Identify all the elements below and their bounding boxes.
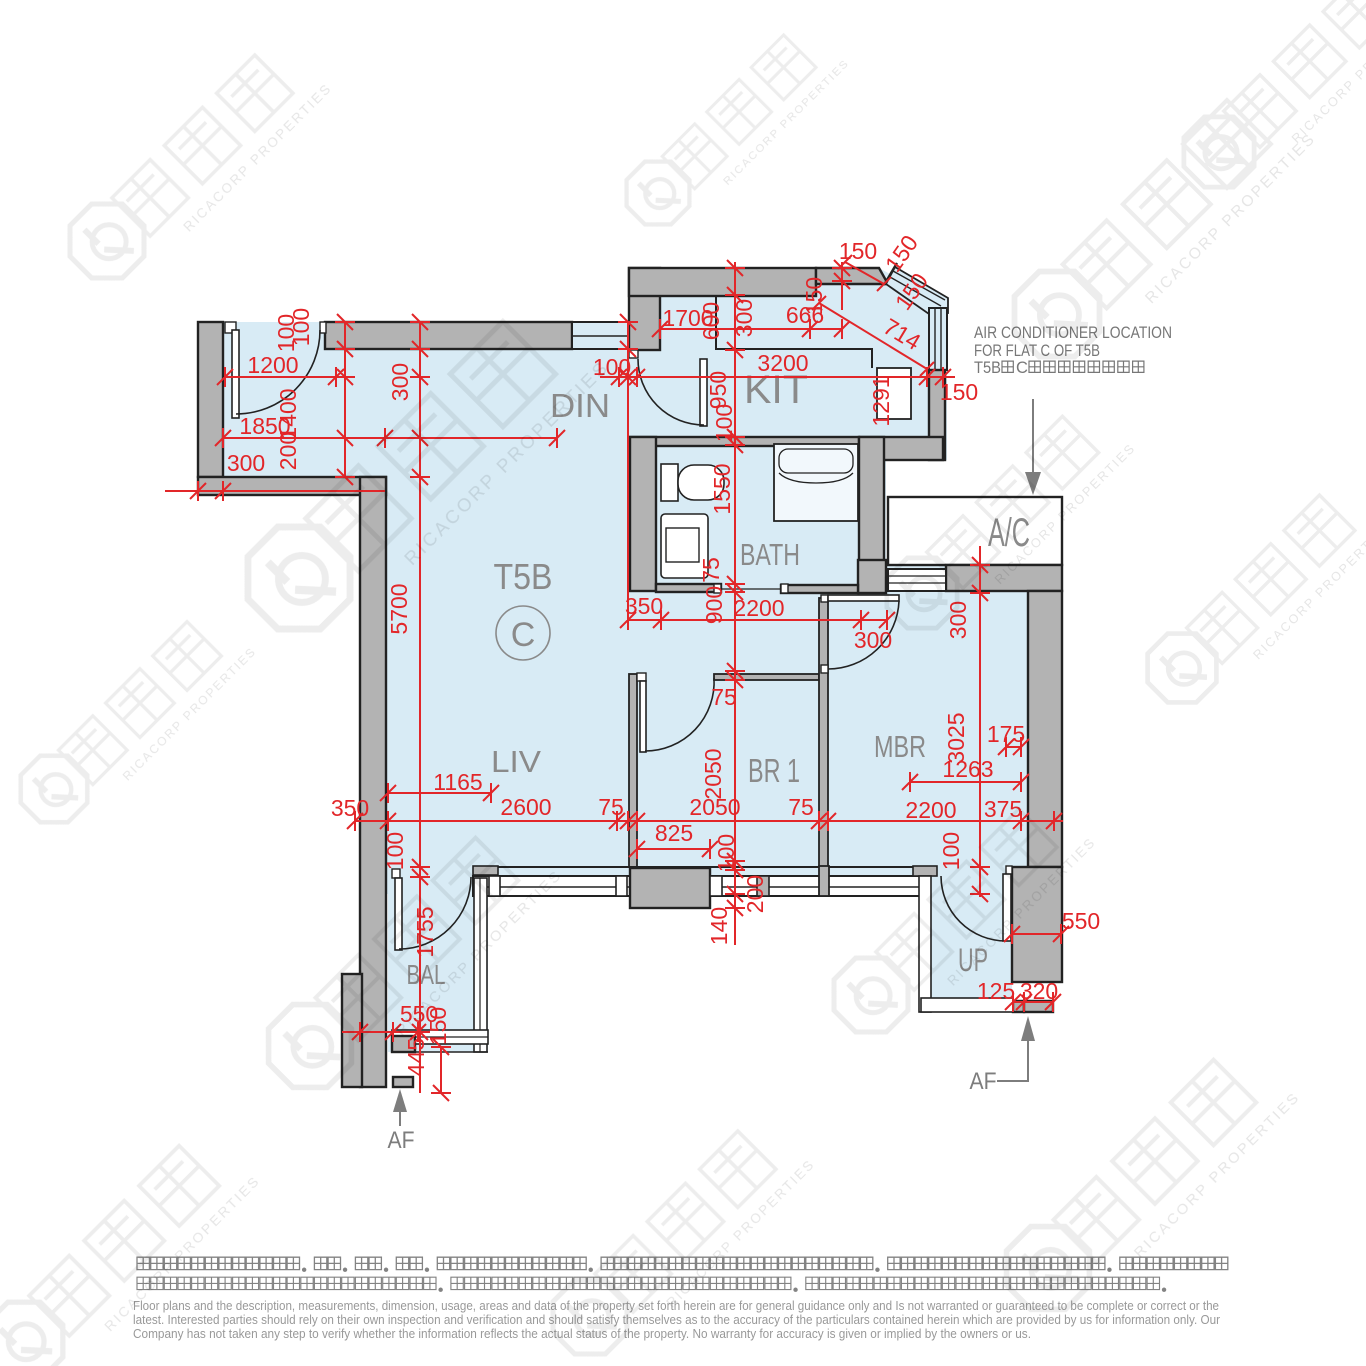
- svg-text:200: 200: [275, 432, 301, 470]
- svg-text:2600: 2600: [500, 794, 551, 820]
- svg-text:100: 100: [711, 404, 737, 442]
- svg-text:100: 100: [938, 832, 964, 870]
- svg-text:1165: 1165: [433, 769, 482, 795]
- svg-text:350: 350: [625, 593, 663, 619]
- svg-text:150: 150: [839, 238, 877, 264]
- svg-text:2050: 2050: [700, 748, 726, 799]
- svg-text:300: 300: [387, 363, 413, 401]
- svg-text:1200: 1200: [247, 352, 298, 378]
- svg-text:T5B: T5B: [494, 556, 553, 597]
- svg-text:75: 75: [788, 794, 814, 820]
- svg-text:300: 300: [854, 627, 892, 653]
- svg-text:825: 825: [655, 820, 693, 846]
- svg-text:latest. Interested parties sho: latest. Interested parties should rely o…: [133, 1312, 1221, 1327]
- svg-text:445: 445: [403, 1038, 429, 1076]
- svg-text:C: C: [511, 616, 536, 654]
- svg-text:550: 550: [1062, 908, 1100, 934]
- svg-text:T5B: T5B: [974, 359, 1001, 377]
- svg-text:100: 100: [382, 832, 408, 870]
- svg-text:BR 1: BR 1: [748, 752, 800, 789]
- svg-text:3025: 3025: [943, 712, 969, 763]
- svg-text:1550: 1550: [709, 463, 735, 514]
- svg-text:140: 140: [706, 907, 732, 945]
- svg-text:BATH: BATH: [740, 537, 800, 572]
- svg-text:LIV: LIV: [491, 744, 541, 779]
- svg-text:150: 150: [801, 277, 827, 315]
- svg-text:320: 320: [1020, 978, 1058, 1004]
- svg-text:75: 75: [598, 794, 624, 820]
- svg-text:1291: 1291: [868, 375, 894, 426]
- svg-text:75: 75: [698, 557, 724, 583]
- svg-text:900: 900: [701, 586, 727, 624]
- svg-text:175: 175: [987, 721, 1025, 747]
- svg-text:5700: 5700: [386, 583, 412, 634]
- svg-text:150: 150: [940, 379, 978, 405]
- svg-text:125: 125: [977, 978, 1015, 1004]
- svg-text:75: 75: [711, 684, 737, 710]
- svg-text:2200: 2200: [733, 595, 784, 621]
- svg-text:100: 100: [288, 308, 314, 346]
- svg-text:300: 300: [227, 450, 265, 476]
- svg-text:350: 350: [331, 795, 369, 821]
- svg-text:AF: AF: [388, 1127, 415, 1154]
- svg-text:2200: 2200: [905, 797, 956, 823]
- svg-text:100: 100: [713, 834, 739, 872]
- svg-text:950: 950: [705, 371, 731, 409]
- svg-text:C: C: [1016, 359, 1028, 377]
- svg-text:3200: 3200: [757, 350, 808, 376]
- svg-text:300: 300: [731, 299, 757, 337]
- svg-text:MBR: MBR: [874, 729, 926, 764]
- svg-text:AF: AF: [970, 1068, 997, 1095]
- svg-text:200: 200: [742, 875, 768, 913]
- svg-text:600: 600: [698, 302, 724, 340]
